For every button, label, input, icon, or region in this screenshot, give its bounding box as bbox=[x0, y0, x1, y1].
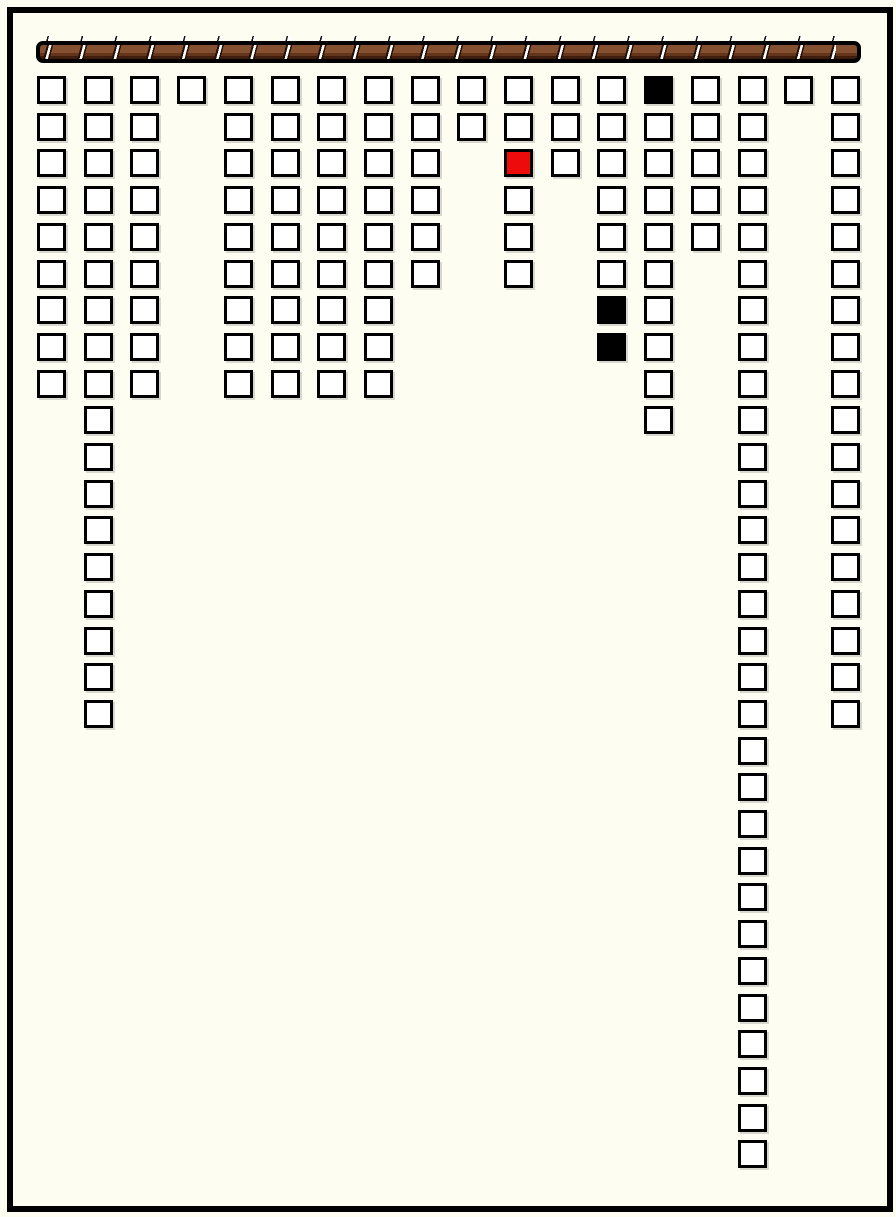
cell[interactable] bbox=[411, 223, 440, 251]
cell[interactable] bbox=[738, 296, 767, 324]
cell[interactable] bbox=[738, 443, 767, 471]
cell[interactable] bbox=[84, 516, 113, 544]
cell[interactable] bbox=[831, 627, 860, 655]
cell[interactable] bbox=[224, 260, 253, 288]
cell[interactable] bbox=[84, 627, 113, 655]
cell[interactable] bbox=[644, 333, 673, 361]
cell[interactable] bbox=[738, 737, 767, 765]
cell[interactable] bbox=[37, 76, 66, 104]
cell[interactable] bbox=[364, 370, 393, 398]
cell[interactable] bbox=[130, 260, 159, 288]
cell[interactable] bbox=[597, 149, 626, 177]
cell[interactable] bbox=[457, 113, 486, 141]
cell[interactable] bbox=[224, 113, 253, 141]
cell[interactable] bbox=[130, 296, 159, 324]
cell[interactable] bbox=[364, 113, 393, 141]
cell[interactable] bbox=[738, 994, 767, 1022]
cell[interactable] bbox=[224, 149, 253, 177]
cell[interactable] bbox=[738, 957, 767, 985]
cell[interactable] bbox=[831, 223, 860, 251]
cell[interactable] bbox=[364, 186, 393, 214]
cell[interactable] bbox=[271, 333, 300, 361]
cell[interactable] bbox=[831, 113, 860, 141]
cell[interactable] bbox=[691, 113, 720, 141]
cell[interactable] bbox=[738, 847, 767, 875]
cell[interactable] bbox=[831, 516, 860, 544]
cell[interactable] bbox=[364, 223, 393, 251]
cell[interactable] bbox=[831, 370, 860, 398]
cell[interactable] bbox=[84, 406, 113, 434]
cell[interactable] bbox=[271, 370, 300, 398]
cell[interactable] bbox=[831, 296, 860, 324]
cell[interactable] bbox=[317, 333, 346, 361]
cell[interactable] bbox=[738, 627, 767, 655]
cell[interactable] bbox=[644, 113, 673, 141]
cell[interactable] bbox=[504, 113, 533, 141]
cell[interactable] bbox=[177, 76, 206, 104]
cell[interactable] bbox=[37, 333, 66, 361]
cell[interactable] bbox=[831, 663, 860, 691]
cell[interactable] bbox=[738, 883, 767, 911]
cell[interactable] bbox=[738, 149, 767, 177]
cell[interactable] bbox=[691, 223, 720, 251]
cell[interactable] bbox=[37, 296, 66, 324]
cell[interactable] bbox=[738, 810, 767, 838]
cell[interactable] bbox=[831, 76, 860, 104]
cell[interactable] bbox=[551, 113, 580, 141]
cell[interactable] bbox=[644, 223, 673, 251]
cell[interactable] bbox=[831, 480, 860, 508]
cell[interactable] bbox=[317, 149, 346, 177]
cell[interactable] bbox=[130, 149, 159, 177]
cell[interactable] bbox=[691, 186, 720, 214]
cell[interactable] bbox=[224, 76, 253, 104]
cell[interactable] bbox=[37, 223, 66, 251]
cell[interactable] bbox=[504, 76, 533, 104]
cell[interactable] bbox=[84, 113, 113, 141]
cell[interactable] bbox=[84, 590, 113, 618]
cell[interactable] bbox=[831, 443, 860, 471]
black-cell[interactable] bbox=[597, 333, 626, 361]
cell[interactable] bbox=[738, 1104, 767, 1132]
cell[interactable] bbox=[504, 260, 533, 288]
cell[interactable] bbox=[411, 186, 440, 214]
cell[interactable] bbox=[84, 223, 113, 251]
cell[interactable] bbox=[457, 76, 486, 104]
cell[interactable] bbox=[784, 76, 813, 104]
cell[interactable] bbox=[831, 406, 860, 434]
cell[interactable] bbox=[364, 260, 393, 288]
cell[interactable] bbox=[364, 76, 393, 104]
cell[interactable] bbox=[84, 149, 113, 177]
cell[interactable] bbox=[831, 553, 860, 581]
cell[interactable] bbox=[597, 113, 626, 141]
cell[interactable] bbox=[738, 1140, 767, 1168]
cell[interactable] bbox=[37, 149, 66, 177]
red-cell[interactable] bbox=[504, 149, 533, 177]
cell[interactable] bbox=[317, 370, 346, 398]
cell[interactable] bbox=[504, 223, 533, 251]
cell[interactable] bbox=[130, 76, 159, 104]
cell[interactable] bbox=[644, 260, 673, 288]
black-cell[interactable] bbox=[644, 76, 673, 104]
cell[interactable] bbox=[37, 260, 66, 288]
cell[interactable] bbox=[738, 480, 767, 508]
cell[interactable] bbox=[271, 223, 300, 251]
cell[interactable] bbox=[84, 700, 113, 728]
cell[interactable] bbox=[271, 260, 300, 288]
cell[interactable] bbox=[831, 590, 860, 618]
cell[interactable] bbox=[37, 370, 66, 398]
cell[interactable] bbox=[738, 113, 767, 141]
cell[interactable] bbox=[130, 370, 159, 398]
cell[interactable] bbox=[364, 149, 393, 177]
cell[interactable] bbox=[691, 149, 720, 177]
cell[interactable] bbox=[317, 260, 346, 288]
cell[interactable] bbox=[411, 113, 440, 141]
cell[interactable] bbox=[84, 370, 113, 398]
cell[interactable] bbox=[551, 149, 580, 177]
cell[interactable] bbox=[224, 223, 253, 251]
cell[interactable] bbox=[738, 223, 767, 251]
cell[interactable] bbox=[738, 406, 767, 434]
cell[interactable] bbox=[644, 296, 673, 324]
cell[interactable] bbox=[738, 260, 767, 288]
cell[interactable] bbox=[317, 113, 346, 141]
cell[interactable] bbox=[271, 113, 300, 141]
cell[interactable] bbox=[738, 700, 767, 728]
cell[interactable] bbox=[738, 1067, 767, 1095]
cell[interactable] bbox=[130, 113, 159, 141]
cell[interactable] bbox=[831, 260, 860, 288]
cell[interactable] bbox=[84, 443, 113, 471]
cell[interactable] bbox=[224, 370, 253, 398]
cell[interactable] bbox=[738, 663, 767, 691]
cell[interactable] bbox=[644, 370, 673, 398]
cell[interactable] bbox=[644, 406, 673, 434]
cell[interactable] bbox=[317, 223, 346, 251]
cell[interactable] bbox=[738, 590, 767, 618]
cell[interactable] bbox=[644, 149, 673, 177]
cell[interactable] bbox=[37, 186, 66, 214]
cell[interactable] bbox=[84, 333, 113, 361]
cell[interactable] bbox=[317, 186, 346, 214]
cell[interactable] bbox=[130, 186, 159, 214]
cell[interactable] bbox=[84, 186, 113, 214]
cell[interactable] bbox=[738, 1030, 767, 1058]
cell[interactable] bbox=[738, 553, 767, 581]
cell[interactable] bbox=[597, 186, 626, 214]
cell[interactable] bbox=[84, 663, 113, 691]
board bbox=[0, 0, 896, 1217]
cell[interactable] bbox=[738, 920, 767, 948]
cell[interactable] bbox=[551, 76, 580, 104]
cell[interactable] bbox=[597, 260, 626, 288]
cell[interactable] bbox=[597, 76, 626, 104]
cell[interactable] bbox=[738, 370, 767, 398]
cell[interactable] bbox=[271, 296, 300, 324]
cell[interactable] bbox=[130, 223, 159, 251]
cell[interactable] bbox=[644, 186, 673, 214]
cell[interactable] bbox=[84, 260, 113, 288]
cell[interactable] bbox=[271, 149, 300, 177]
cell[interactable] bbox=[831, 186, 860, 214]
cell[interactable] bbox=[130, 333, 159, 361]
cell[interactable] bbox=[364, 296, 393, 324]
cell[interactable] bbox=[738, 516, 767, 544]
cell[interactable] bbox=[831, 333, 860, 361]
cell[interactable] bbox=[738, 773, 767, 801]
cell[interactable] bbox=[831, 149, 860, 177]
cell[interactable] bbox=[738, 333, 767, 361]
cell[interactable] bbox=[411, 76, 440, 104]
cell[interactable] bbox=[831, 700, 860, 728]
cell[interactable] bbox=[84, 76, 113, 104]
cell[interactable] bbox=[84, 480, 113, 508]
cell[interactable] bbox=[317, 296, 346, 324]
cell[interactable] bbox=[271, 186, 300, 214]
cell[interactable] bbox=[738, 76, 767, 104]
cell[interactable] bbox=[738, 186, 767, 214]
cell[interactable] bbox=[411, 149, 440, 177]
cell[interactable] bbox=[224, 296, 253, 324]
cell[interactable] bbox=[84, 296, 113, 324]
cell[interactable] bbox=[224, 333, 253, 361]
cell[interactable] bbox=[317, 76, 346, 104]
cell[interactable] bbox=[271, 76, 300, 104]
cell[interactable] bbox=[504, 186, 533, 214]
cell[interactable] bbox=[37, 113, 66, 141]
cell[interactable] bbox=[411, 260, 440, 288]
black-cell[interactable] bbox=[597, 296, 626, 324]
cell[interactable] bbox=[84, 553, 113, 581]
cell[interactable] bbox=[691, 76, 720, 104]
cell[interactable] bbox=[364, 333, 393, 361]
cell[interactable] bbox=[224, 186, 253, 214]
cell[interactable] bbox=[597, 223, 626, 251]
